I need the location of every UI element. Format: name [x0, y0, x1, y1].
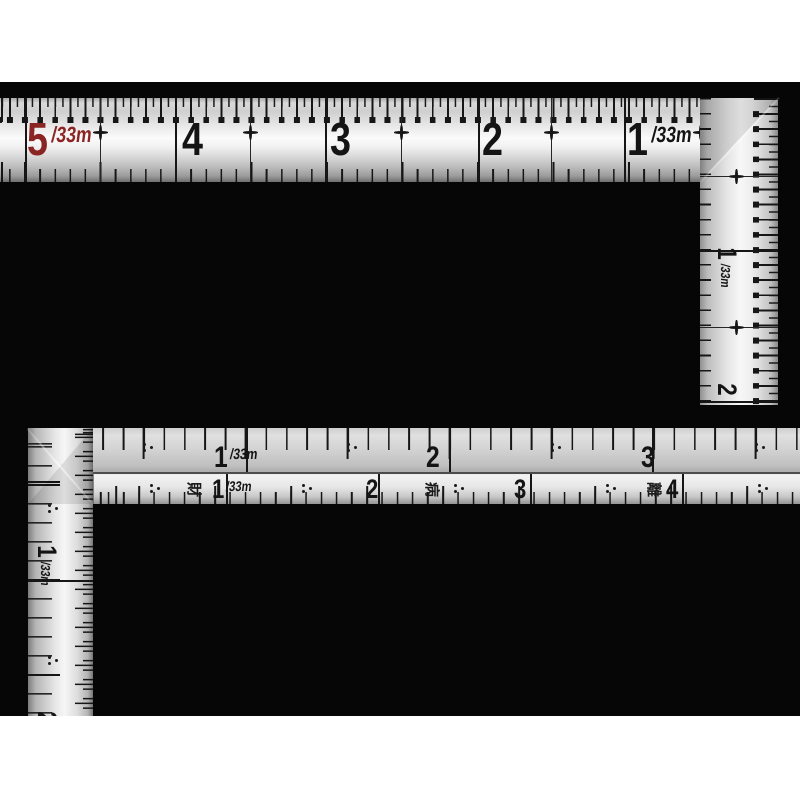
scale-label: 2	[28, 701, 77, 716]
scale-label: 3	[330, 116, 356, 162]
scale-number: 5	[27, 116, 48, 162]
major-graduation-line	[682, 474, 684, 504]
scale-label: 1/33m	[700, 251, 757, 285]
scale-label: 3	[514, 476, 529, 503]
half-unit-cross-marker	[243, 125, 258, 140]
product-photo: 5/33m4321/33m 1/33m2 1/33m231/33m234財病離	[0, 82, 800, 716]
major-graduation-line	[175, 98, 177, 182]
half-unit-cross-marker	[729, 169, 744, 184]
half-unit-dots-marker	[48, 504, 51, 507]
scale-number: 2	[426, 443, 440, 473]
major-graduation-line	[325, 98, 327, 182]
top-square-horizontal-arm: 5/33m4321/33m	[0, 98, 778, 182]
scale-unit-suffix: /33m	[650, 124, 693, 146]
fine-tick-band	[0, 98, 778, 107]
scale-label: 1/33m	[28, 549, 77, 583]
scale-number: 1	[212, 476, 224, 503]
half-unit-dots-marker	[347, 443, 350, 446]
bottom-square-horizontal-arm: 1/33m231/33m234財病離	[28, 428, 800, 504]
scale-number: 2	[482, 116, 503, 162]
scale-label: 4	[666, 476, 681, 503]
bottom-tick-band-major	[0, 162, 778, 182]
scale-label: 2	[366, 476, 381, 503]
scale-label: 4	[182, 116, 208, 162]
half-graduation-line	[551, 98, 552, 182]
scale-number: 1	[214, 443, 228, 473]
scale-number: 2	[714, 384, 741, 396]
half-unit-dots-marker	[454, 484, 457, 487]
scale-label: 2	[426, 443, 443, 473]
half-unit-dots-marker	[302, 484, 305, 487]
major-graduation-line	[530, 474, 532, 504]
half-unit-cross-marker	[729, 320, 744, 335]
scale-label: 1/33m	[627, 116, 703, 162]
scale-label: 2	[482, 116, 508, 162]
half-unit-dots-marker	[758, 484, 761, 487]
scale-unit-suffix: /33m	[225, 479, 252, 493]
bottom-tick-band	[0, 169, 778, 182]
half-unit-cross-marker	[394, 125, 409, 140]
scale-label: 1/33m	[214, 443, 265, 473]
major-graduation-line	[449, 428, 451, 472]
scale-unit-suffix: /33m	[39, 561, 52, 586]
half-unit-dots-marker	[755, 443, 758, 446]
scale-unit-suffix: /33m	[719, 263, 732, 288]
scale-number: 2	[366, 476, 378, 503]
half-unit-cross-marker	[544, 125, 559, 140]
major-graduation-line	[478, 98, 480, 182]
scale-number: 2	[34, 712, 61, 716]
scale-number: 4	[666, 476, 678, 503]
top-tick-band	[28, 428, 800, 450]
half-unit-dots-marker	[606, 484, 609, 487]
scale-number: 3	[330, 116, 351, 162]
scale-unit-suffix: /33m	[50, 124, 93, 146]
half-graduation-line	[250, 98, 251, 182]
half-unit-dots-marker	[48, 656, 51, 659]
scale-label: 3	[641, 443, 658, 473]
kanji-luck-mark: 財	[186, 482, 201, 497]
scale-number: 1	[627, 116, 648, 162]
page: 5/33m4321/33m 1/33m2 1/33m231/33m234財病離	[0, 0, 800, 800]
scale-number: 1	[714, 247, 741, 259]
half-unit-dots-marker	[150, 484, 153, 487]
scale-label: 2	[700, 373, 757, 405]
lower-scale-start-line	[93, 472, 94, 504]
scale-unit-suffix: /33m	[229, 447, 258, 462]
scale-number: 3	[514, 476, 526, 503]
scale-label: 1/33m	[212, 476, 259, 503]
scale-number: 3	[641, 443, 655, 473]
half-unit-dots-marker	[551, 443, 554, 446]
half-graduation-line	[401, 98, 402, 182]
kanji-luck-mark: 離	[646, 482, 661, 497]
half-unit-dots-marker	[143, 443, 146, 446]
scale-label: 5/33m	[27, 116, 103, 162]
scale-number: 1	[34, 545, 61, 557]
kanji-luck-mark: 病	[424, 482, 439, 497]
scale-number: 4	[182, 116, 203, 162]
major-graduation-line	[624, 98, 626, 182]
